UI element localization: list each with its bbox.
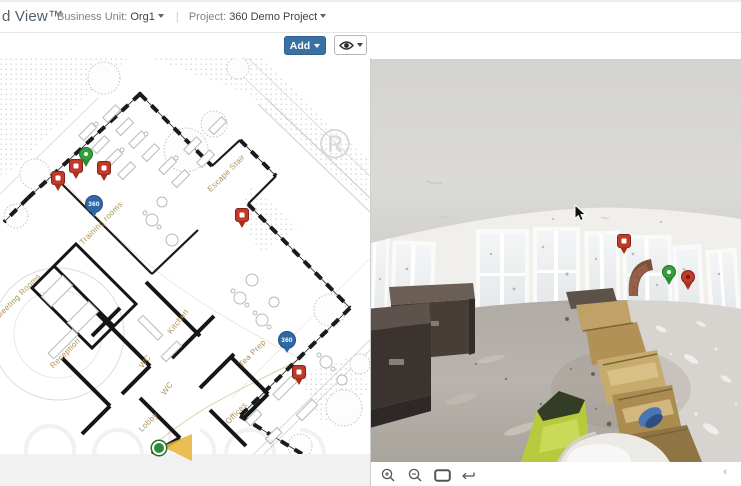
add-button-label: Add xyxy=(290,40,310,52)
business-unit-select[interactable]: Org1 xyxy=(130,11,154,23)
fullscreen-button[interactable] xyxy=(433,466,451,484)
add-button[interactable]: Add xyxy=(284,36,326,55)
business-unit-label: Business Unit: xyxy=(57,11,127,23)
pano-toolbar xyxy=(371,462,741,486)
pano-viewport[interactable] xyxy=(371,59,741,462)
chevron-down-icon xyxy=(357,43,363,47)
zoom-in-button[interactable] xyxy=(379,466,397,484)
floorplan-panel: Escape Stair Training rooms Meeting Room… xyxy=(0,58,370,486)
project-select[interactable]: 360 Demo Project xyxy=(229,11,317,23)
breadcrumb-separator: | xyxy=(176,11,179,23)
app-logo: d View™ xyxy=(2,8,63,25)
chevron-down-icon[interactable] xyxy=(320,14,326,18)
zoom-out-icon xyxy=(408,468,423,483)
action-bar: Add xyxy=(0,34,741,58)
chevron-down-icon xyxy=(314,44,320,48)
floorplan-map[interactable]: Escape Stair Training rooms Meeting Room… xyxy=(0,58,370,454)
chevron-down-icon[interactable] xyxy=(158,14,164,18)
header-bar: d View™ Business Unit: Org1 | Project: 3… xyxy=(0,2,741,33)
eye-icon xyxy=(339,40,354,51)
zoom-in-icon xyxy=(381,468,396,483)
fullscreen-icon xyxy=(434,469,451,482)
breadcrumb: Business Unit: Org1 | Project: 360 Demo … xyxy=(57,11,328,23)
pano-panel: ‹ xyxy=(370,58,741,486)
view-options-button[interactable] xyxy=(334,35,367,55)
registered-mark: ® xyxy=(320,120,351,167)
zoom-out-button[interactable] xyxy=(406,466,424,484)
app-window: d View™ Business Unit: Org1 | Project: 3… xyxy=(0,0,741,486)
jump-arrow-icon xyxy=(461,469,478,482)
jump-arrow-button[interactable] xyxy=(460,466,478,484)
project-label: Project: xyxy=(189,11,226,23)
collapse-chevron[interactable]: ‹ xyxy=(723,466,727,478)
